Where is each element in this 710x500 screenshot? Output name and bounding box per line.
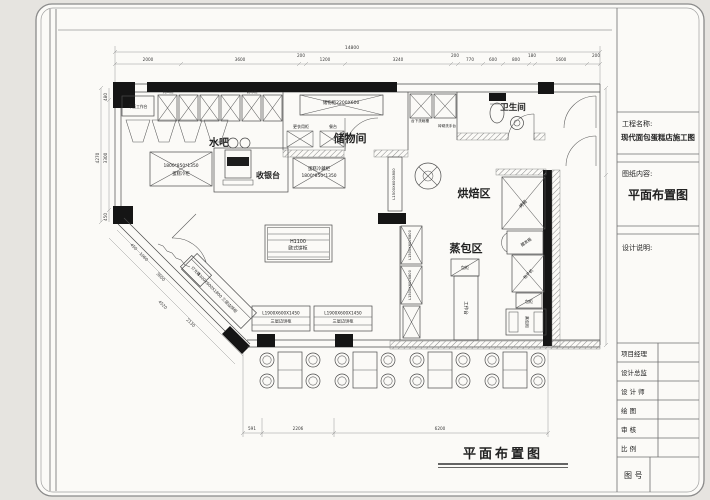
plan-caption: 平面布置图 bbox=[463, 446, 543, 462]
dining-table-label: 餐台 bbox=[329, 123, 337, 129]
floor-plan-svg: 工程名称: 现代面包蛋糕店施工图 图纸内容: 平面布置图 设计说明: 项目经理 … bbox=[0, 0, 710, 500]
dim-top-4: 3240 bbox=[393, 57, 404, 62]
dim-left-1: 4270 bbox=[95, 152, 100, 163]
dim-bottom-1: 2206 bbox=[293, 426, 304, 431]
storage-cabinet-label: 储物柜2200X600 bbox=[323, 99, 360, 106]
tb-row-check: 审 核 bbox=[621, 425, 637, 434]
dim-top-8: 800 bbox=[512, 57, 520, 62]
tb-drawing-no: 图 号 bbox=[624, 471, 643, 480]
room-label-steam: 蒸包区 bbox=[450, 241, 483, 255]
dim-left-0: 480 bbox=[103, 93, 108, 101]
content-label: 图纸内容: bbox=[622, 169, 652, 178]
dim-bottom-2: 6200 bbox=[435, 426, 446, 431]
steam-cabinet-label: 蒸包柜 bbox=[525, 316, 531, 328]
sealer-label: 封口机 bbox=[163, 89, 174, 94]
drawing-sheet: 工程名称: 现代面包蛋糕店施工图 图纸内容: 平面布置图 设计说明: 项目经理 … bbox=[0, 0, 710, 500]
worktop-label: 平面工作台 bbox=[129, 104, 148, 109]
island-name-label: 欧式饼柜 bbox=[288, 245, 307, 252]
work-table-label: 工作台 bbox=[463, 301, 470, 315]
project-label: 工程名称: bbox=[622, 119, 652, 128]
room-label-water-bar: 水吧 bbox=[208, 136, 229, 149]
shelf1-size: L1900X600X1450 bbox=[262, 311, 300, 316]
locker-label: 更衣用柜 bbox=[293, 123, 309, 129]
dim-top-11: 200 bbox=[592, 53, 600, 58]
dim-left-3: 450 bbox=[103, 213, 108, 221]
dim-top-2: 200 bbox=[297, 53, 305, 58]
notes-label: 设计说明: bbox=[622, 243, 652, 252]
cake-fridge-left-size: 1800*850*1350 bbox=[163, 163, 198, 169]
shelf1-name: 三层边饼柜 bbox=[271, 318, 292, 325]
mid-cabinet-size-2: L1500X600X800 bbox=[408, 229, 412, 260]
dim-bottom-0: 591 bbox=[248, 426, 256, 431]
dim-top-3: 1200 bbox=[320, 57, 331, 62]
dim-top-6: 770 bbox=[466, 57, 474, 62]
island-height-label: H1100 bbox=[290, 239, 306, 245]
mid-cabinet-size-3: L1500X600X800 bbox=[408, 269, 412, 300]
tb-row-chief: 设计总监 bbox=[621, 368, 648, 377]
dim-top-0: 2000 bbox=[143, 57, 154, 62]
room-label-baking: 烘焙区 bbox=[458, 186, 491, 200]
dim-top-1: 3600 bbox=[235, 57, 246, 62]
content-value: 平面布置图 bbox=[628, 187, 688, 202]
dim-top-5: 200 bbox=[451, 53, 459, 58]
tb-row-pm: 项目经理 bbox=[621, 349, 648, 358]
cake-fridge-mid-size: 1800*850*1350 bbox=[301, 173, 336, 179]
ice-maker-label: 制冰机 bbox=[247, 89, 258, 94]
mid-cabinet-size-1: L1500X600X800 bbox=[391, 168, 396, 200]
bun-cabinet-label-b: 包柜 bbox=[525, 298, 533, 304]
tb-row-scale: 比 例 bbox=[621, 444, 636, 453]
dim-top-10: 1600 bbox=[556, 57, 567, 62]
dim-top-9: 180 bbox=[528, 53, 536, 58]
bun-cabinet-label-a: 包柜 bbox=[461, 264, 469, 270]
dim-top-7: 600 bbox=[489, 57, 497, 62]
dim-left-2: 3300 bbox=[103, 152, 108, 163]
tb-row-draft: 绘 图 bbox=[621, 406, 636, 415]
room-label-storage: 储物间 bbox=[334, 131, 367, 145]
cake-fridge-left-name: 蛋糕冷柜 bbox=[172, 170, 190, 177]
wash-basin-label: 砖砌洗手台 bbox=[438, 123, 456, 128]
under-sink-label: 台下洗碗槽 bbox=[411, 118, 429, 123]
baking-area: 烘焙区 bbox=[458, 186, 491, 200]
project-value: 现代面包蛋糕店施工图 bbox=[621, 133, 695, 142]
shelf2-size: L1900X600X1450 bbox=[324, 311, 362, 316]
shelf2-name: 三层边饼柜 bbox=[333, 318, 354, 325]
dim-top-overall: 14800 bbox=[345, 45, 359, 51]
room-label-cashier: 收银台 bbox=[256, 170, 280, 180]
cake-fridge-mid-name: 蛋糕冷藏柜 bbox=[308, 165, 331, 172]
tb-row-designer: 设 计 师 bbox=[621, 387, 645, 396]
